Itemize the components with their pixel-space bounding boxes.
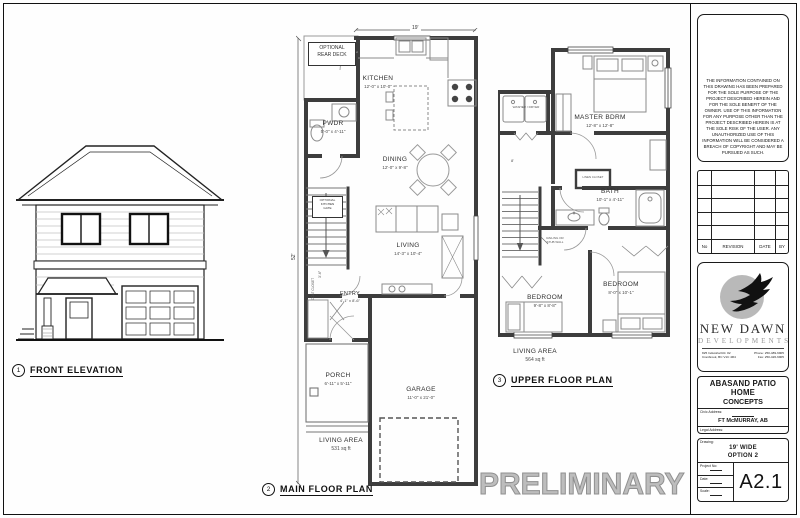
view-number-3: 3 xyxy=(493,374,506,387)
master-bedroom-furniture xyxy=(556,56,666,170)
view-title-text: MAIN FLOOR PLAN xyxy=(280,484,373,496)
project-name: ABASAND PATIO HOME CONCEPTS xyxy=(698,377,788,409)
stair-width-dim: 3'-6" xyxy=(318,271,322,278)
view-title-text: UPPER FLOOR PLAN xyxy=(511,375,613,387)
drawing-info-box: Drawing: 19' WIDE OPTION 2 Project No: D… xyxy=(697,438,789,502)
title-block-divider xyxy=(690,3,691,514)
room-label-dining: DINING 12'-0" x 9'-8" xyxy=(363,156,427,170)
coat-closet-label: COAT CLOSET xyxy=(311,272,315,306)
project-no-field: Project No: xyxy=(698,463,733,476)
front-elevation-drawing xyxy=(14,136,226,358)
view-title-upper-floor-plan: 3 UPPER FLOOR PLAN xyxy=(493,374,613,387)
room-label-master: MASTER BDRM 12'-8" x 12'-8" xyxy=(565,114,635,128)
railing-note: RAILING OR STUB WALL xyxy=(534,237,576,245)
company-subname: DEVELOPMENTS xyxy=(698,337,788,345)
optional-rear-deck-note: OPTIONAL REAR DECK xyxy=(308,42,356,66)
elevation-roof xyxy=(16,146,224,205)
room-label-entry: ENTRY 4'-1" x 8'-6" xyxy=(320,291,380,303)
upper-stair-dim: 8' xyxy=(511,158,514,163)
disclaimer-box: THE INFORMATION CONTAINED ON THIS DRAWIN… xyxy=(697,14,789,162)
company-logo-box: NEW DAWN DEVELOPMENTS 825 Industrial Rd.… xyxy=(697,262,789,372)
civic-address-value: FT McMURRAY, AB xyxy=(698,418,788,424)
linen-closet-label: LINEN CLOSET xyxy=(566,176,620,180)
main-floor-dim-lines xyxy=(296,28,478,486)
company-name: NEW DAWN xyxy=(698,321,788,337)
view-title-front-elevation: 1 FRONT ELEVATION xyxy=(12,364,123,377)
view-title-text: FRONT ELEVATION xyxy=(30,365,123,377)
view-title-main-floor-plan: 2 MAIN FLOOR PLAN xyxy=(262,483,373,496)
legal-address-field: Legal Address: xyxy=(698,427,788,432)
elevation-garage-door xyxy=(122,286,198,339)
garage-door-dashed xyxy=(380,418,458,482)
revision-header-revision: REVISION xyxy=(711,239,754,253)
main-floor-depth-dim: 52' xyxy=(291,251,297,262)
disclaimer-text: THE INFORMATION CONTAINED ON THIS DRAWIN… xyxy=(702,78,784,156)
main-floor-plan-drawing xyxy=(296,28,486,490)
civic-address-field: Civic Address: FT McMURRAY, AB xyxy=(698,409,788,427)
porch-outline xyxy=(306,344,368,432)
washer-dryer-label: WASHER / DRYER xyxy=(500,106,552,110)
room-label-living: LIVING 14'-3" x 10'-4" xyxy=(376,242,440,256)
room-label-porch: PORCH 6'-11" x 5'-11" xyxy=(306,372,370,386)
address-line2: Cranbrook, BC V1C 4R4 xyxy=(702,355,736,359)
company-fax: Fax: 250-426-6905 xyxy=(754,355,784,359)
room-label-pwdr: PWDR 5'-0" x 4'-11" xyxy=(301,120,365,134)
revision-header-by: BY xyxy=(775,239,788,253)
optional-kitchen-gate-note: OPTIONAL KITCHEN GATE xyxy=(312,196,343,218)
sheet-number: A2.1 xyxy=(734,463,788,501)
revision-header-no: No xyxy=(698,239,711,253)
revision-table: No REVISION DATE BY xyxy=(697,170,789,254)
preliminary-watermark: PRELIMINARY xyxy=(479,468,685,503)
elevation-upper-storey xyxy=(36,205,204,261)
main-living-area-label: LIVING AREA 531 sq ft xyxy=(309,437,373,452)
view-number-2: 2 xyxy=(262,483,275,496)
eagle-logo xyxy=(698,265,788,319)
room-label-bath: BATH 10'-1" x 4'-11" xyxy=(575,188,645,202)
drawing-sheet: 19' 52' OPTIONAL REAR DECK OPTIONAL KITC… xyxy=(0,0,800,518)
upper-living-area-label: LIVING AREA 564 sq ft xyxy=(500,348,570,363)
room-label-bedroom-right: BEDROOM 8'-0" x 10'-1" xyxy=(586,281,656,295)
room-label-bedroom-left: BEDROOM 9'-8" x 8'-8" xyxy=(510,294,580,308)
main-floor-width-dim: 19' xyxy=(410,25,421,31)
revision-header-date: DATE xyxy=(754,239,775,253)
project-info-box: ABASAND PATIO HOME CONCEPTS Civic Addres… xyxy=(697,376,789,434)
scale-field: Scale: xyxy=(698,488,733,501)
date-field: Date: xyxy=(698,476,733,489)
room-label-kitchen: KITCHEN 12'-0" x 10'-0" xyxy=(346,75,410,89)
room-label-garage: GARAGE 11'-0" x 21'-0" xyxy=(389,386,453,400)
company-address: 825 Industrial Rd. #2 Cranbrook, BC V1C … xyxy=(702,348,784,359)
view-number-1: 1 xyxy=(12,364,25,377)
drawing-name-field: Drawing: 19' WIDE OPTION 2 xyxy=(698,439,788,463)
